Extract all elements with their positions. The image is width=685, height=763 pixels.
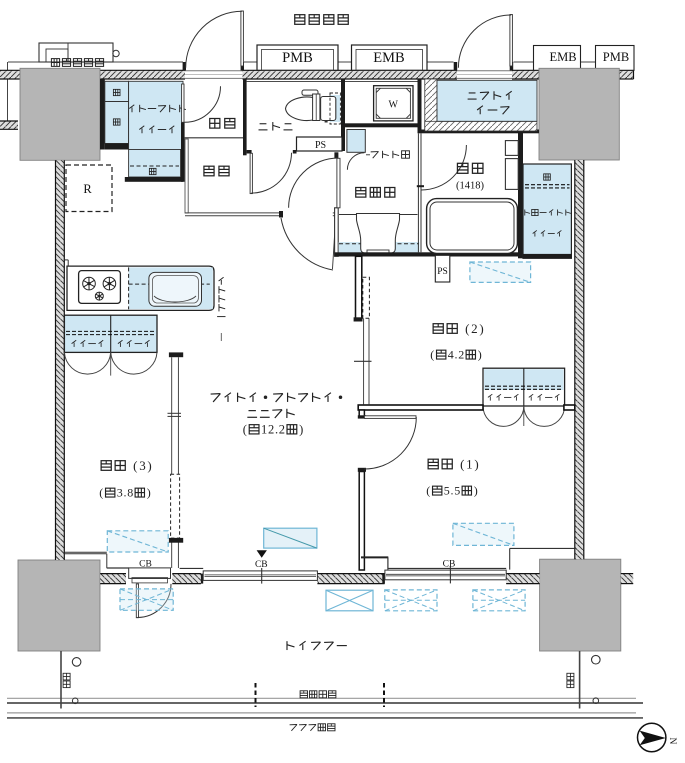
svg-text:R: R (83, 182, 92, 196)
svg-text:(: ( (465, 321, 469, 336)
svg-text:(: ( (460, 456, 464, 471)
svg-text:(: ( (430, 348, 434, 362)
svg-text:.: . (124, 486, 127, 500)
svg-text:PMB: PMB (282, 50, 313, 66)
svg-text:(: ( (133, 458, 137, 473)
svg-text:EMB: EMB (549, 50, 576, 64)
svg-text:): ) (147, 486, 151, 500)
svg-text:2: 2 (279, 423, 285, 437)
svg-text:): ) (147, 458, 151, 473)
svg-text:4: 4 (448, 348, 454, 362)
svg-text:2: 2 (268, 423, 274, 437)
svg-text:3: 3 (117, 486, 123, 500)
svg-text:3: 3 (139, 458, 146, 473)
svg-text:CB: CB (443, 559, 456, 569)
svg-text:EMB: EMB (373, 50, 404, 66)
svg-text:(: ( (243, 423, 247, 437)
svg-text:8: 8 (127, 486, 133, 500)
svg-text:.: . (455, 348, 458, 362)
svg-text:1: 1 (261, 423, 267, 437)
svg-text:1: 1 (466, 456, 473, 471)
svg-text:(: ( (99, 486, 103, 500)
svg-text:): ) (299, 423, 303, 437)
svg-text:.: . (275, 423, 278, 437)
svg-text:(1418): (1418) (456, 180, 484, 191)
svg-text:(: ( (426, 484, 430, 498)
svg-text:2: 2 (458, 348, 464, 362)
svg-text:): ) (479, 321, 483, 336)
svg-text:PS: PS (315, 140, 326, 151)
svg-text:PS: PS (437, 267, 448, 277)
svg-text:): ) (474, 456, 478, 471)
svg-text:PMB: PMB (603, 50, 629, 64)
svg-text:): ) (474, 484, 478, 498)
svg-text:W: W (388, 100, 398, 111)
svg-text:5: 5 (454, 484, 460, 498)
svg-text:2: 2 (471, 321, 478, 336)
svg-text:.: . (451, 484, 454, 498)
svg-text:5: 5 (444, 484, 450, 498)
svg-text:N: N (667, 737, 677, 744)
svg-text:): ) (478, 348, 482, 362)
